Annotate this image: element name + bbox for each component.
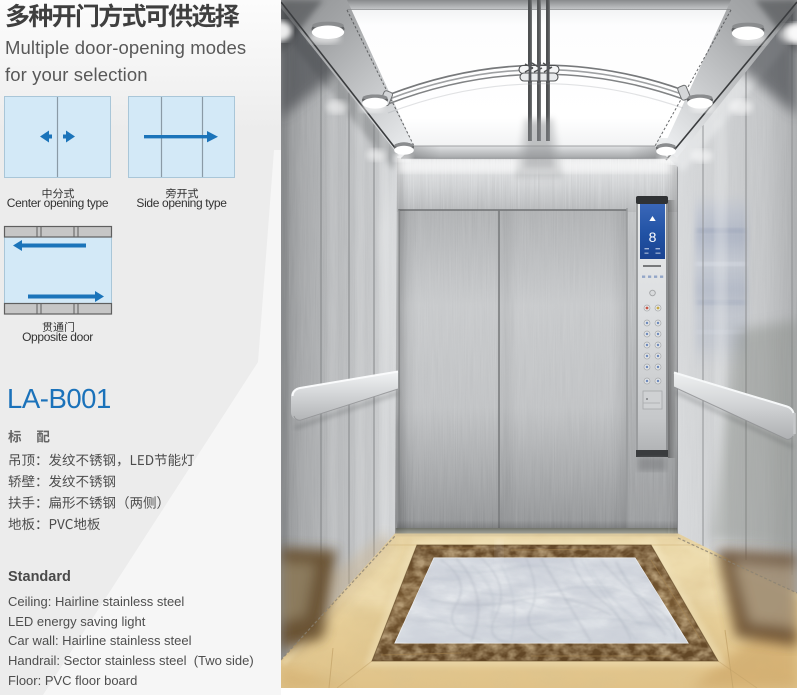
- svg-text:8: 8: [649, 229, 657, 245]
